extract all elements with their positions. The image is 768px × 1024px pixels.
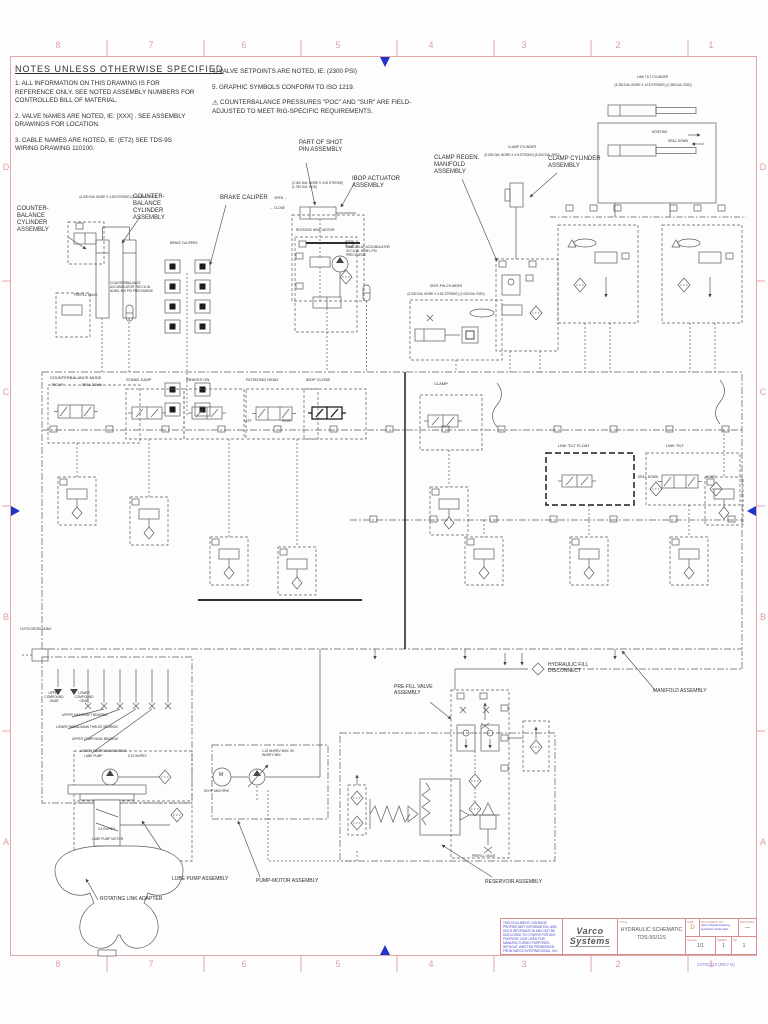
zone-col-top-4: 4	[425, 41, 437, 50]
warning-triangle-icon: ⚠	[212, 100, 218, 107]
main-manifold	[42, 372, 743, 659]
link-tilt-valve-clusters	[550, 205, 746, 372]
size-cell: SIZE D	[686, 919, 700, 936]
prefill-valve-assembly	[430, 690, 509, 858]
manifold-assembly-label: MANIFOLD ASSEMBLY	[653, 688, 743, 694]
bearing-label-2: UPPER COMPOUND BEARING	[72, 738, 147, 742]
note-item-5: 5. GRAPHIC SYMBOLS CONFORM TO ISO 1219.	[212, 84, 402, 93]
brake-calipers	[165, 205, 226, 417]
note-item-2: 2. VALVE NAMES ARE NOTED, IE: [XXX] . SE…	[15, 113, 210, 130]
link-tilt-cylinder-title: LINK TILT CYLINDER	[600, 76, 705, 80]
document-no-value: Varco Digital Drawing Hydraulic Schemati…	[701, 924, 737, 931]
note-item-4: 4. VALVE SETPOINTS ARE NOTED, IE: (2300 …	[212, 68, 402, 77]
bus-tags	[50, 426, 735, 522]
pump-displacement-label: 1.15 IN³/REV MAX .90 IN³/REV MIN	[262, 750, 304, 758]
size-label: SIZE	[687, 920, 694, 924]
logo-line-2: Systems	[570, 937, 611, 947]
section-counterbalance-mode: COUNTERBALANCE MODE	[50, 376, 130, 381]
section-rotating-head: ROTATING HEAD	[246, 378, 306, 383]
link-tilt-cylinder-spec: (3.250 DIA. BORE X 14.5 STROKE) (1.380 D…	[598, 84, 708, 88]
corner-revision-note: 24750222 (REV B)	[697, 962, 735, 967]
zone-col-bot-6: 6	[238, 960, 250, 969]
lube-pump-displacement: 5.12 IN³/REV	[128, 755, 162, 759]
prefill-assembly-label: PRE-FILL VALVE ASSEMBLY	[394, 684, 440, 696]
sheet-value: 1	[716, 943, 731, 949]
schematic-canvas	[10, 57, 758, 956]
zone-col-top-2: 2	[612, 41, 624, 50]
ibop-actuator	[292, 163, 370, 372]
rotating-head-motor-label: ROTATING HEAD MOTOR	[296, 229, 342, 233]
zone-col-top-1: 1	[705, 41, 717, 50]
size-value: D	[686, 925, 699, 931]
callout-ibop-actuator: IBOP ACTUATOR ASSEMBLY	[352, 176, 416, 190]
sheet-label: SHEET	[717, 938, 727, 942]
scale-cell: SCALE 1/1	[686, 937, 716, 954]
drill-down-label: DRILL DOWN	[668, 140, 704, 144]
scale-value: 1/1	[686, 943, 715, 949]
note-item-6-text: COUNTERBALANCE PRESSURES "POC" AND "SUR"…	[212, 99, 411, 115]
pump-motor-assembly-label: PUMP-MOTOR ASSEMBLY	[256, 878, 361, 884]
revision-value: —	[739, 925, 756, 931]
counterbalance-cylinder-spec: (4.000 DIA. BORE X 4.50 STROKE) (3.500 D…	[76, 196, 160, 200]
lube-motor-displacement: 3.6 IN³/REV	[98, 828, 132, 832]
section-drill-down: DRILL DOWN	[82, 384, 112, 388]
pump-motor-assembly	[212, 649, 357, 877]
zone-col-top-8: 8	[52, 41, 64, 50]
zone-col-bot-8: 8	[52, 960, 64, 969]
of-value: 1	[732, 943, 756, 949]
drawing-title-line-1: HYDRAULIC SCHEMATIC	[618, 927, 685, 935]
prefill-valve-left-label: PREFILL VALVE	[74, 294, 114, 298]
section-tilt-drill-down: DRILL DOWN	[638, 476, 668, 480]
notes-block: NOTES UNLESS OTHERWISE SPECIFIED 1. ALL …	[15, 64, 215, 161]
note-item-1: 1. ALL INFORMATION ON THIS DRAWING IS FO…	[15, 80, 200, 106]
upper-compound-gear-label: UPPER COMPOUND GEAR	[40, 692, 68, 704]
section-stand-jump: STAND JUMP	[126, 378, 176, 383]
sheet-cell: SHEET 1	[716, 937, 732, 954]
section-left: LEFT	[244, 420, 264, 424]
proprietary-notice: THIS DOCUMENT CONTAINS PROPRIETARY INFOR…	[501, 919, 563, 954]
ibop-spec: (2.000 DIA. BORE X 4.00 STROKE) (1.750 D…	[292, 182, 352, 190]
of-cell: OF 1	[732, 937, 756, 954]
bearing-label-0: UPPER MAINSHAFT BEARING	[62, 714, 132, 718]
zone-col-bot-3: 3	[518, 960, 530, 969]
title-cell: TITLE HYDRAULIC SCHEMATIC TDS-9S/11S	[618, 919, 686, 954]
of-label: OF	[733, 938, 737, 942]
time-delay-accumulator-label: TIME-DELAY ACCUMULATOR 30 CU.IN. NOM'L P…	[346, 246, 394, 258]
section-clamp: CLAMP	[434, 382, 474, 387]
zone-col-top-3: 3	[518, 41, 530, 50]
zone-col-bot-2: 2	[612, 960, 624, 969]
shot-pin-cylinder	[410, 300, 502, 372]
prefill-valve-small-label: PREFILL VALVE	[472, 855, 512, 859]
zone-row-right-c: C	[757, 388, 768, 397]
section-right: RIGHT	[282, 420, 304, 424]
reservoir-assembly-label: RESERVOIR ASSEMBLY	[485, 879, 585, 885]
callout-clamp-regen: CLAMP REGEN. MANIFOLD ASSEMBLY	[434, 155, 492, 176]
ibop-open-label: OPEN →	[274, 197, 298, 201]
callout-counterbalance-left: COUNTER- BALANCE CYLINDER ASSEMBLY	[17, 206, 65, 234]
note-item-6: ⚠ COUNTERBALANCE PRESSURES "POC" AND "SU…	[212, 99, 412, 117]
bearing-label-1: LOWER RADIAL/MAIN THRUST BEARING	[56, 726, 151, 730]
section-link-tilt: LINK TILT	[666, 444, 706, 449]
zone-col-bot-5: 5	[332, 960, 344, 969]
motor-letter: M	[219, 772, 227, 778]
lower-compound-gear-label: LOWER COMPOUND GEAR	[70, 692, 98, 704]
logo-line-1: Varco	[576, 927, 603, 937]
scale-label: SCALE	[687, 938, 697, 942]
lube-pump-assembly-label: LUBE PUMP ASSEMBLY	[172, 876, 267, 882]
drawing-title-line-2: TDS-9S/11S	[618, 935, 685, 943]
company-logo: Varco Systems	[563, 919, 618, 954]
zone-col-top-6: 6	[238, 41, 250, 50]
document-no-cell: DOCUMENT NO. Varco Digital Drawing Hydra…	[700, 919, 739, 936]
title-block-grid: SIZE D DOCUMENT NO. Varco Digital Drawin…	[686, 919, 756, 954]
clamp-cylinder-title: CLAMP CYLINDER	[482, 146, 562, 150]
zone-col-bot-4: 4	[425, 960, 437, 969]
zone-col-top-7: 7	[145, 41, 157, 50]
lube-pressure-switch-label: 15 PSI DECREASING	[20, 628, 60, 632]
lube-pump-motor-label: LUBE PUMP MOTOR	[92, 838, 137, 842]
shot-pin-cylinder-title: SHOT-PIN CYLINDER	[404, 285, 488, 289]
zone-col-bot-7: 7	[145, 960, 157, 969]
shot-pin-cylinder-spec: (2.000 DIA. BORE X 0.81 STROKE) (1.000 D…	[404, 293, 488, 297]
lube-pump-label: LUBE PUMP	[84, 755, 114, 759]
callout-part-of-shot-pin: PART OF SHOT PIN ASSEMBLY	[299, 140, 343, 154]
section-ibop-close: IBOP CLOSE	[306, 378, 356, 383]
section-brakes-on: BRAKES ON	[186, 378, 236, 383]
zone-col-top-5: 5	[332, 41, 344, 50]
hydraulic-fill-label: HYDRAULIC FILL DISCONNECT	[548, 662, 608, 674]
link-tilt-cylinders	[598, 105, 716, 217]
title-label: TITLE	[619, 920, 627, 924]
rotating-link-adapter	[55, 785, 183, 956]
section-rig-up: RIG UP	[52, 384, 72, 388]
clamp-regen-manifold	[462, 173, 558, 372]
motor-rating-label: 50 HP 1800 RPM	[204, 790, 230, 794]
title-block: THIS DOCUMENT CONTAINS PROPRIETARY INFOR…	[500, 918, 757, 955]
zone-row-right-a: A	[757, 838, 768, 847]
callout-clamp-cylinder-assembly: CLAMP CYLINDER ASSEMBLY	[548, 156, 602, 170]
zone-row-right-b: B	[757, 613, 768, 622]
revision-cell: REVISION —	[739, 919, 756, 936]
brake-calipers-small-label: BRAKE CALIPERS	[170, 242, 210, 246]
revision-label: REVISION	[740, 920, 754, 924]
notes-title: NOTES UNLESS OTHERWISE SPECIFIED	[15, 64, 215, 74]
hoisting-label: HOISTING	[652, 131, 682, 135]
notes-block-right: 4. VALVE SETPOINTS ARE NOTED, IE: (2300 …	[212, 68, 412, 124]
section-link-tilt-float: LINK TILT FLOAT	[558, 444, 618, 449]
drawing-page: 8 7 6 5 4 3 2 1 8 7 6 5 4 3 2 1 D C B A …	[0, 0, 768, 1024]
note-item-3: 3. CABLE NAMES ARE NOTED, IE: (ET2) SEE …	[15, 137, 185, 154]
section-hoist: HOIST	[706, 476, 730, 480]
ibop-close-label: ← CLOSE	[270, 207, 296, 211]
reservoir-assembly	[340, 703, 555, 877]
zone-row-right-d: D	[757, 163, 768, 172]
counterbalance-accumulator-label: COUNTERBALANCE ACCUMULATOR 750 CU.IN. NO…	[110, 282, 160, 294]
rotating-link-adapter-label: ROTATING LINK ADAPTER	[100, 896, 210, 902]
